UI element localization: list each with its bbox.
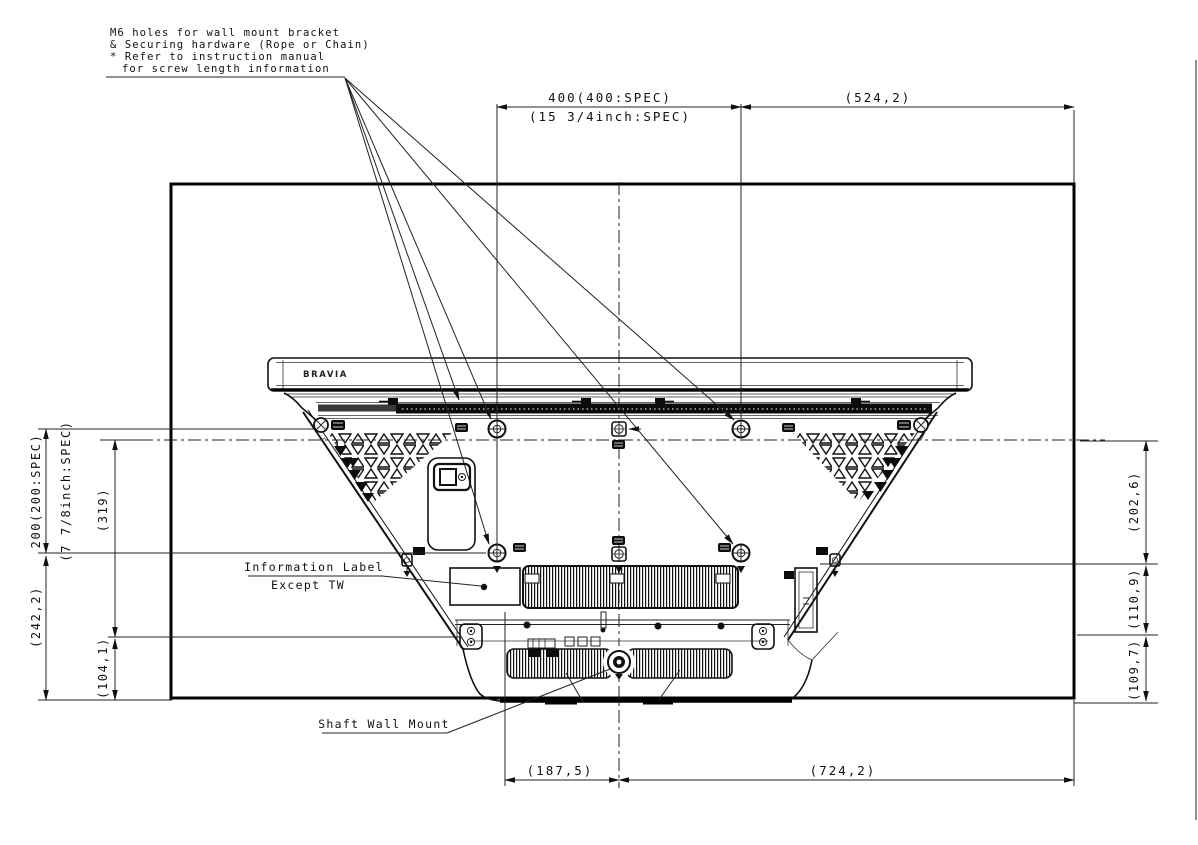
- dim-bottom-724-label: (724,2): [810, 763, 877, 778]
- dim-top-524-label: (524,2): [845, 90, 912, 105]
- info-label-text: Information Label: [244, 560, 384, 574]
- dim-right-202-label: (202,6): [1127, 471, 1141, 533]
- dim-left-319: (319): [96, 440, 140, 637]
- dim-right-110-label: (110,9): [1127, 568, 1141, 630]
- info-label-sub-text: Except TW: [271, 578, 345, 592]
- dim-left-242-label: (242,2): [29, 586, 43, 648]
- dim-left-104-label: (104,1): [96, 637, 110, 699]
- dim-bottom-187-label: (187,5): [527, 763, 594, 778]
- leader-dot: [481, 584, 487, 590]
- dim-top-400-label: 400(400:SPEC): [548, 90, 672, 105]
- dim-left-200-inch-label: (7 7/8inch:SPEC): [59, 420, 73, 561]
- callout-line-3: * Refer to instruction manual: [110, 51, 325, 63]
- dim-left-319-label: (319): [96, 488, 110, 532]
- dim-top-400-inch-label: (15 3/4inch:SPEC): [529, 109, 691, 124]
- shaft-label-text: Shaft Wall Mount: [318, 717, 450, 731]
- dim-right-109: (109,7): [1074, 637, 1158, 703]
- callout-line-4: for screw length information: [122, 63, 330, 75]
- callout-line-2: & Securing hardware (Rope or Chain): [110, 39, 370, 51]
- vesa-hole-top-right: [733, 421, 750, 438]
- dim-top-524: (524,2): [741, 90, 1074, 183]
- callout-line-1: M6 holes for wall mount bracket: [110, 27, 340, 39]
- center-vent-grille: [523, 566, 738, 608]
- dim-right-109-label: (109,7): [1127, 639, 1141, 701]
- dim-bottom-724: (724,2): [619, 700, 1074, 786]
- bravia-logo: BRAVIA: [303, 370, 348, 380]
- dim-right-202: (202,6): [1080, 441, 1158, 563]
- drawing-page: BRAVIA: [0, 0, 1198, 845]
- tv-rear-dimension-drawing: BRAVIA: [0, 0, 1198, 845]
- dim-left-200-label: 200(200:SPEC): [29, 434, 43, 549]
